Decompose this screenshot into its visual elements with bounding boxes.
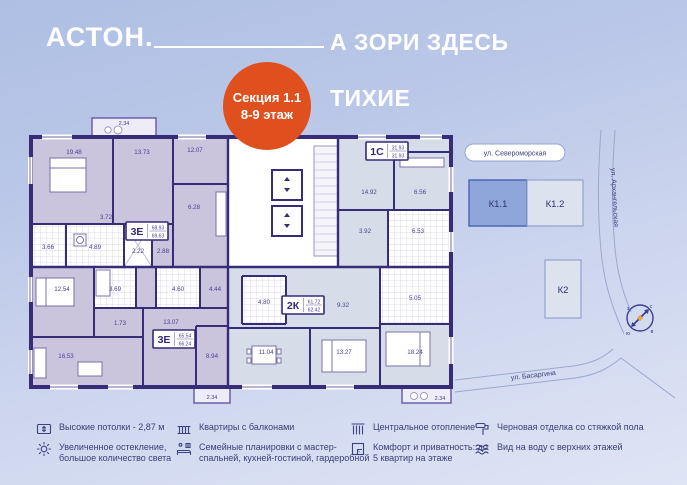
svg-text:в: в — [651, 329, 654, 335]
section-badge-line2: 8-9 этаж — [241, 106, 293, 123]
svg-text:К1.2: К1.2 — [546, 199, 565, 210]
legend-item: Вид на воду с верхних этажей — [474, 442, 634, 457]
street-label-south: ул. Басаргина — [510, 370, 556, 382]
svg-text:6.28: 6.28 — [188, 204, 201, 211]
svg-text:3.69: 3.69 — [109, 286, 122, 293]
road-bottom — [455, 349, 675, 398]
svg-text:К2: К2 — [558, 285, 569, 296]
svg-text:12.07: 12.07 — [187, 147, 203, 154]
legend-item: Центральное отопление — [350, 422, 482, 437]
sun-icon — [36, 441, 52, 457]
street-label-north: ул. Североморская — [465, 144, 565, 161]
svg-text:3.66: 3.66 — [42, 244, 55, 251]
ceiling-height-icon — [36, 421, 52, 437]
svg-text:6.53: 6.53 — [412, 228, 425, 235]
svg-text:4.80: 4.80 — [258, 299, 271, 306]
road-vertical — [598, 130, 631, 334]
svg-text:4.60: 4.60 — [172, 286, 185, 293]
paint-roller-icon — [474, 421, 490, 437]
svg-text:К1.1: К1.1 — [489, 199, 508, 210]
svg-text:2К: 2К — [287, 300, 300, 312]
svg-text:1С: 1С — [370, 146, 384, 158]
balcony-top: 2.34 — [92, 118, 156, 137]
balcony-bottom-middle: 2.34 — [194, 388, 230, 403]
svg-text:1.73: 1.73 — [114, 320, 127, 327]
svg-text:3.72: 3.72 — [100, 214, 113, 221]
svg-text:14.92: 14.92 — [361, 189, 377, 196]
radiator-icon — [350, 421, 366, 437]
balcony-icon — [176, 421, 192, 437]
svg-text:68.93: 68.93 — [152, 226, 165, 232]
page-title: А ЗОРИ ЗДЕСЬ ТИХИЕ — [330, 28, 509, 112]
svg-text:16.53: 16.53 — [58, 353, 74, 360]
svg-text:ул. Североморская: ул. Североморская — [484, 151, 547, 158]
svg-text:2.22: 2.22 — [132, 248, 145, 255]
svg-text:9.32: 9.32 — [337, 302, 350, 309]
legend-item: Черновая отделка со стяжкой пола — [474, 422, 674, 437]
balcony-area: 2.34 — [435, 396, 446, 402]
balcony-area: 2.34 — [207, 395, 218, 401]
svg-text:65.54: 65.54 — [179, 334, 192, 340]
building-k2[interactable]: К2 — [545, 260, 581, 318]
svg-text:13.27: 13.27 — [336, 349, 352, 356]
balcony-bottom-right: 2.34 — [402, 388, 451, 403]
brand-logo: АСТОН. — [46, 22, 153, 53]
svg-text:2.88: 2.88 — [157, 248, 170, 255]
svg-text:8.94: 8.94 — [206, 353, 219, 360]
legend-item: Семейные планировки с мастер-спальней, к… — [176, 442, 374, 463]
svg-text:ю: ю — [626, 331, 630, 337]
svg-text:62.42: 62.42 — [308, 308, 321, 314]
svg-text:13.73: 13.73 — [134, 149, 150, 156]
legend-item: Высокие потолки - 2,87 м — [36, 422, 178, 437]
header-divider — [154, 46, 324, 48]
apartment-badge-3e-top[interactable]: 3Е 68.93 69.63 — [126, 222, 168, 240]
apartment-badge-2k[interactable]: 2К 61.72 62.42 — [282, 296, 324, 314]
svg-text:3.92: 3.92 — [359, 228, 372, 235]
svg-text:4.44: 4.44 — [209, 286, 222, 293]
privacy-icon — [350, 441, 366, 457]
floor-plan: 2.34 2.34 2.34 — [28, 112, 458, 410]
svg-text:61.72: 61.72 — [308, 300, 321, 306]
page: АСТОН. А ЗОРИ ЗДЕСЬ ТИХИЕ Секция 1.1 8-9… — [0, 0, 687, 485]
svg-text:18.24: 18.24 — [407, 349, 423, 356]
legend-item: Квартиры с балконами — [176, 422, 356, 437]
section-badge-line1: Секция 1.1 — [233, 89, 301, 106]
svg-text:3Е: 3Е — [131, 226, 144, 238]
svg-text:11.04: 11.04 — [258, 349, 274, 356]
building-k1-2[interactable]: К1.2 — [527, 180, 583, 226]
apartment-badge-3e-bottom[interactable]: 3Е 65.54 66.24 — [153, 330, 195, 348]
svg-text:31.93: 31.93 — [392, 154, 405, 160]
water-view-icon — [474, 441, 490, 457]
svg-text:31.93: 31.93 — [392, 146, 405, 152]
section-badge: Секция 1.1 8-9 этаж — [223, 62, 311, 150]
svg-text:13.07: 13.07 — [163, 319, 179, 326]
svg-text:6.56: 6.56 — [414, 189, 427, 196]
svg-text:4.89: 4.89 — [89, 244, 102, 251]
compass-icon: с в ю з — [626, 304, 654, 337]
legend-item: Комфорт и приватность: до 5 квартир на э… — [350, 442, 488, 463]
legend-item: Увеличенное остекление, большое количест… — [36, 442, 186, 463]
svg-text:3Е: 3Е — [158, 334, 171, 346]
street-label-east: ул. Архангельская — [609, 168, 619, 228]
svg-text:19.48: 19.48 — [66, 149, 82, 156]
svg-text:66.24: 66.24 — [179, 342, 192, 348]
family-layout-icon — [176, 441, 192, 457]
site-map: ул. Североморская ул. Архангельская ул. … — [455, 130, 687, 402]
apartment-badge-1s[interactable]: 1С 31.93 31.93 — [366, 142, 408, 160]
svg-text:с: с — [650, 304, 653, 310]
building-k1-1[interactable]: К1.1 — [469, 180, 527, 226]
legend: Высокие потолки - 2,87 м Увеличенное ост… — [0, 416, 687, 482]
svg-text:69.63: 69.63 — [152, 234, 165, 240]
svg-text:12.54: 12.54 — [54, 286, 70, 293]
balcony-area: 2.34 — [119, 121, 130, 127]
svg-text:5.05: 5.05 — [409, 295, 422, 302]
